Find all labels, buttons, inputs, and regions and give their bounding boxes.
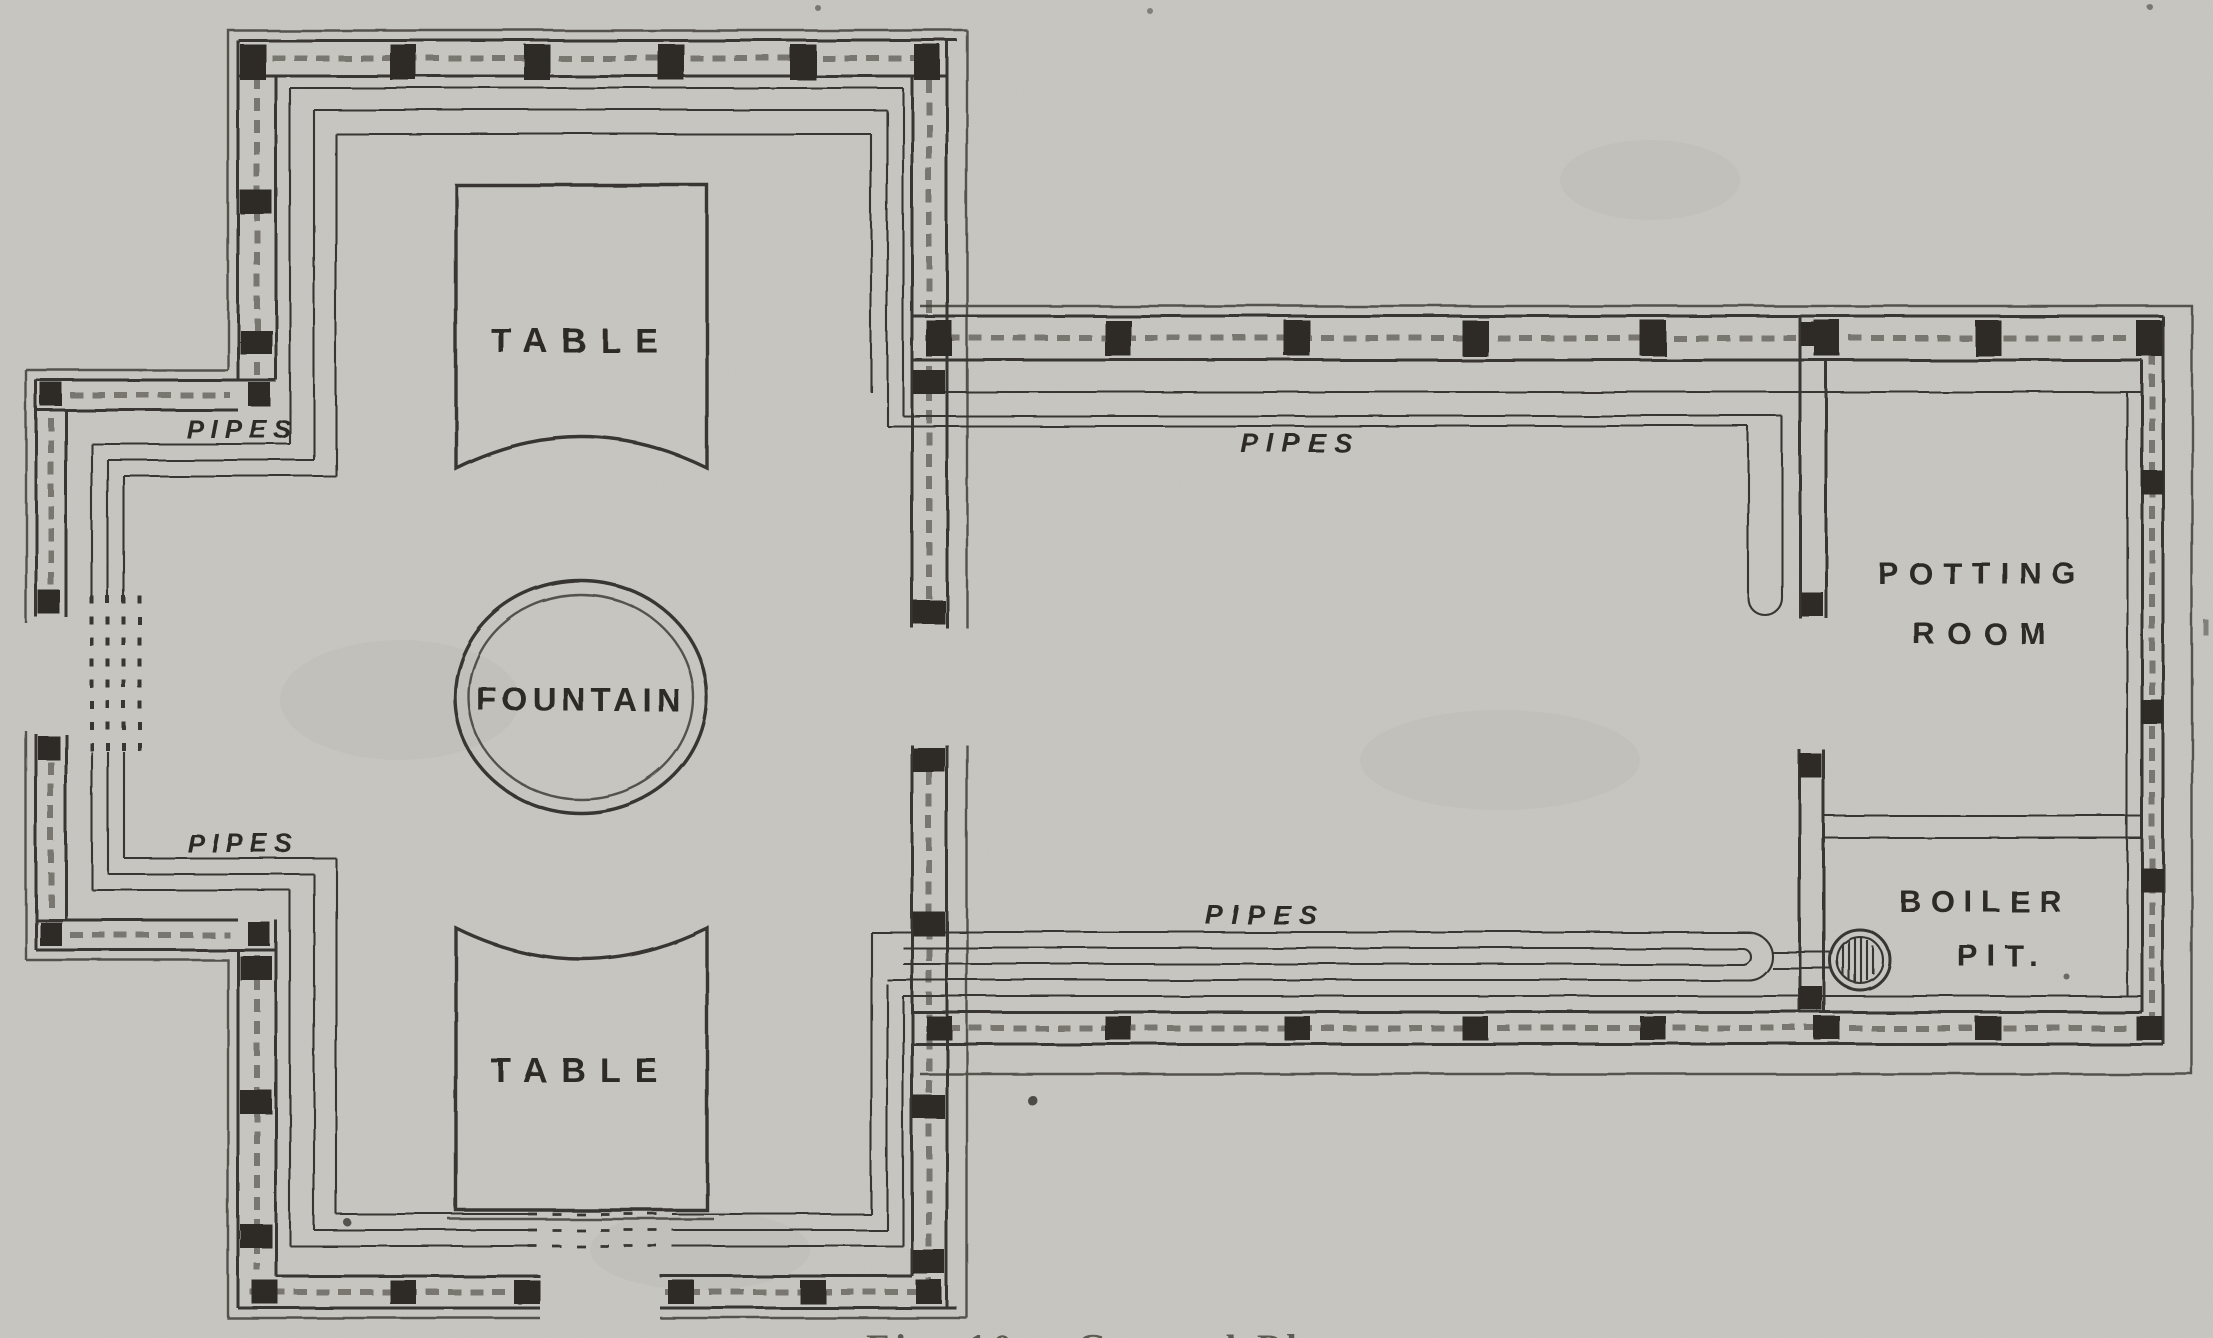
table-bottom-label: TABLE	[491, 1052, 672, 1090]
pipes-label-bottom-wing: PIPES	[1205, 900, 1325, 930]
pipes-label-top-wing: PIPES	[1240, 428, 1360, 458]
potting-room-label-line2: ROOM	[1913, 616, 2057, 651]
pipes-label-house-upper: PIPES	[186, 414, 298, 444]
fountain-label: FOUNTAIN	[477, 681, 685, 718]
boiler-pit-label-line1: BOILER	[1899, 884, 2070, 919]
figure-caption-partial: Fig. 10.—Ground Plan	[866, 1327, 1355, 1338]
table-top-label: TABLE	[491, 322, 672, 360]
potting-room-label-line1: POTTING	[1878, 556, 2086, 591]
pipes-label-house-lower: PIPES	[187, 828, 299, 858]
boiler-pit-label-line2: PIT.	[1957, 938, 2046, 973]
greenhouse-floor-plan-svg: TABLE TABLE FOUNTAIN PIPES PIPES PIPES P…	[0, 0, 2213, 1338]
engraved-floor-plan-page: TABLE TABLE FOUNTAIN PIPES PIPES PIPES P…	[0, 0, 2213, 1338]
